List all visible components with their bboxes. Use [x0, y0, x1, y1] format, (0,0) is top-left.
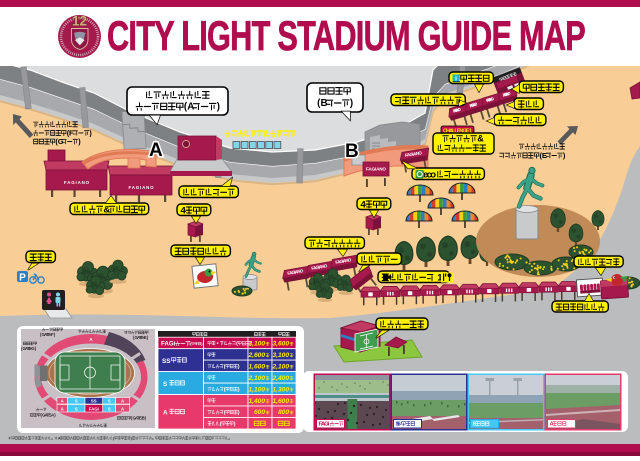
svg-text:(: (: [224, 410, 226, 416]
svg-text:12: 12: [72, 14, 87, 29]
svg-text:3,100: 3,100: [272, 352, 289, 359]
svg-text:A: A: [61, 407, 64, 412]
svg-text:2,100: 2,100: [247, 375, 265, 382]
svg-text:1,100: 1,100: [248, 386, 265, 393]
svg-text:GATE-F: GATE-F: [42, 332, 55, 337]
svg-text:P: P: [19, 273, 26, 284]
svg-text:SS: SS: [396, 422, 402, 428]
svg-text:): ): [238, 364, 240, 370]
svg-text:): ): [350, 98, 353, 109]
svg-text:FAGIANO: FAGIANO: [129, 185, 155, 190]
svg-text:SS: SS: [91, 399, 97, 404]
svg-text:CITY LIGHT STADIUM GUIDE MAP: CITY LIGHT STADIUM GUIDE MAP: [107, 12, 585, 59]
svg-text:G: G: [58, 137, 64, 146]
svg-text:eco: eco: [423, 169, 436, 180]
svg-text:GATE-B: GATE-B: [133, 415, 145, 420]
svg-text:1,600: 1,600: [248, 363, 265, 370]
svg-text:S: S: [473, 422, 477, 428]
svg-text:FAGI: FAGI: [89, 407, 99, 412]
svg-text:B: B: [345, 141, 359, 162]
svg-text:SS: SS: [162, 358, 171, 365]
svg-text:3,600: 3,600: [272, 340, 289, 347]
svg-text:E: E: [542, 151, 547, 160]
svg-text:F: F: [69, 128, 74, 137]
svg-text:600: 600: [254, 409, 265, 416]
svg-text:S: S: [108, 399, 111, 404]
svg-text:4: 4: [181, 205, 187, 216]
svg-text:): ): [238, 387, 240, 393]
svg-text:): ): [234, 421, 236, 427]
svg-text:(: (: [224, 364, 226, 370]
svg-text:S: S: [108, 407, 111, 412]
svg-text:S: S: [75, 399, 78, 404]
svg-text:(: (: [224, 387, 226, 393]
svg-text:): ): [238, 410, 240, 416]
svg-text:2,600: 2,600: [247, 352, 265, 359]
svg-text:3,100: 3,100: [248, 340, 265, 347]
svg-text:(: (: [236, 341, 238, 347]
svg-text:2,100: 2,100: [271, 363, 289, 370]
svg-text:1,300: 1,300: [272, 386, 289, 393]
svg-text:1,400: 1,400: [248, 398, 265, 405]
svg-text:i: i: [455, 76, 457, 83]
svg-text:A: A: [163, 410, 168, 417]
svg-text:GATE-E: GATE-E: [135, 335, 147, 340]
svg-text:A: A: [61, 399, 64, 404]
svg-text:FAGIANO: FAGIANO: [366, 167, 386, 172]
svg-text:S: S: [163, 381, 168, 388]
svg-text:(: (: [220, 421, 222, 427]
svg-text:1,600: 1,600: [272, 398, 289, 405]
svg-text:GATE-G: GATE-G: [23, 346, 36, 351]
svg-text:): ): [217, 102, 220, 113]
svg-text:A: A: [121, 399, 124, 404]
svg-text:FAGIANO: FAGIANO: [64, 180, 90, 185]
svg-text:A: A: [149, 140, 163, 161]
svg-text:GATE-A: GATE-A: [42, 412, 54, 417]
svg-text:2,400: 2,400: [271, 375, 289, 382]
svg-text:S: S: [75, 407, 78, 412]
svg-text:4: 4: [361, 199, 367, 210]
svg-text:A: A: [121, 407, 124, 412]
svg-text:FAGi: FAGi: [161, 340, 176, 347]
svg-text:&: &: [477, 133, 484, 143]
svg-text:FAGi: FAGi: [319, 422, 330, 428]
svg-text:800: 800: [278, 409, 289, 416]
